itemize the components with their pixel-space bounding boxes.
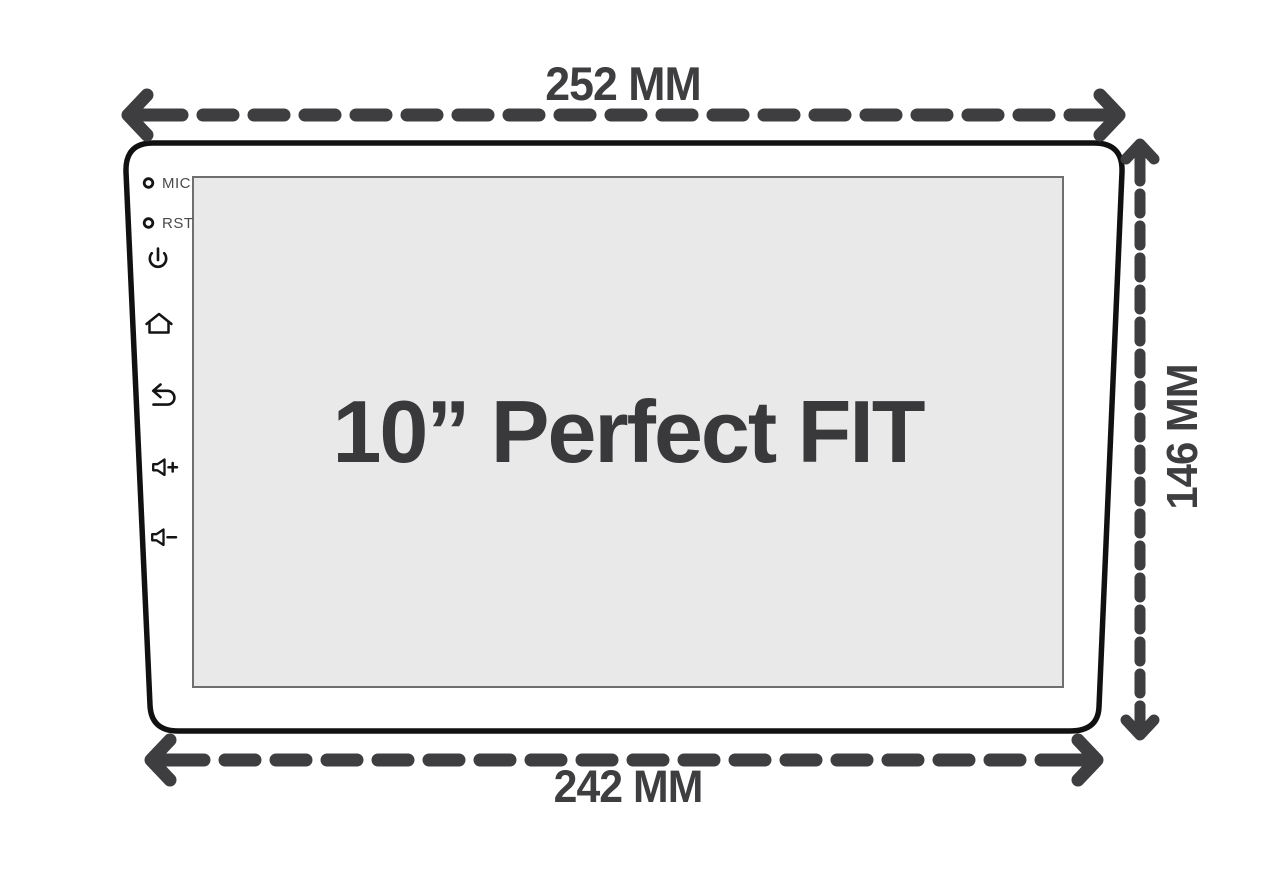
- screen-size-title: 10” Perfect FIT: [193, 177, 1063, 687]
- bottom-width-dimension-label: 242 MM: [438, 764, 818, 809]
- head-unit-dimension-diagram: 252 MM 242 MM 146 MM 10” Perfect FIT MIC…: [0, 0, 1280, 888]
- mic-port-label: MIC: [162, 176, 191, 191]
- dimension-arrow-right: [1126, 144, 1154, 735]
- top-width-dimension-label: 252 MM: [433, 60, 813, 107]
- reset-port-label: RST: [162, 216, 194, 231]
- side-height-dimension-label: 146 MM: [1161, 364, 1205, 509]
